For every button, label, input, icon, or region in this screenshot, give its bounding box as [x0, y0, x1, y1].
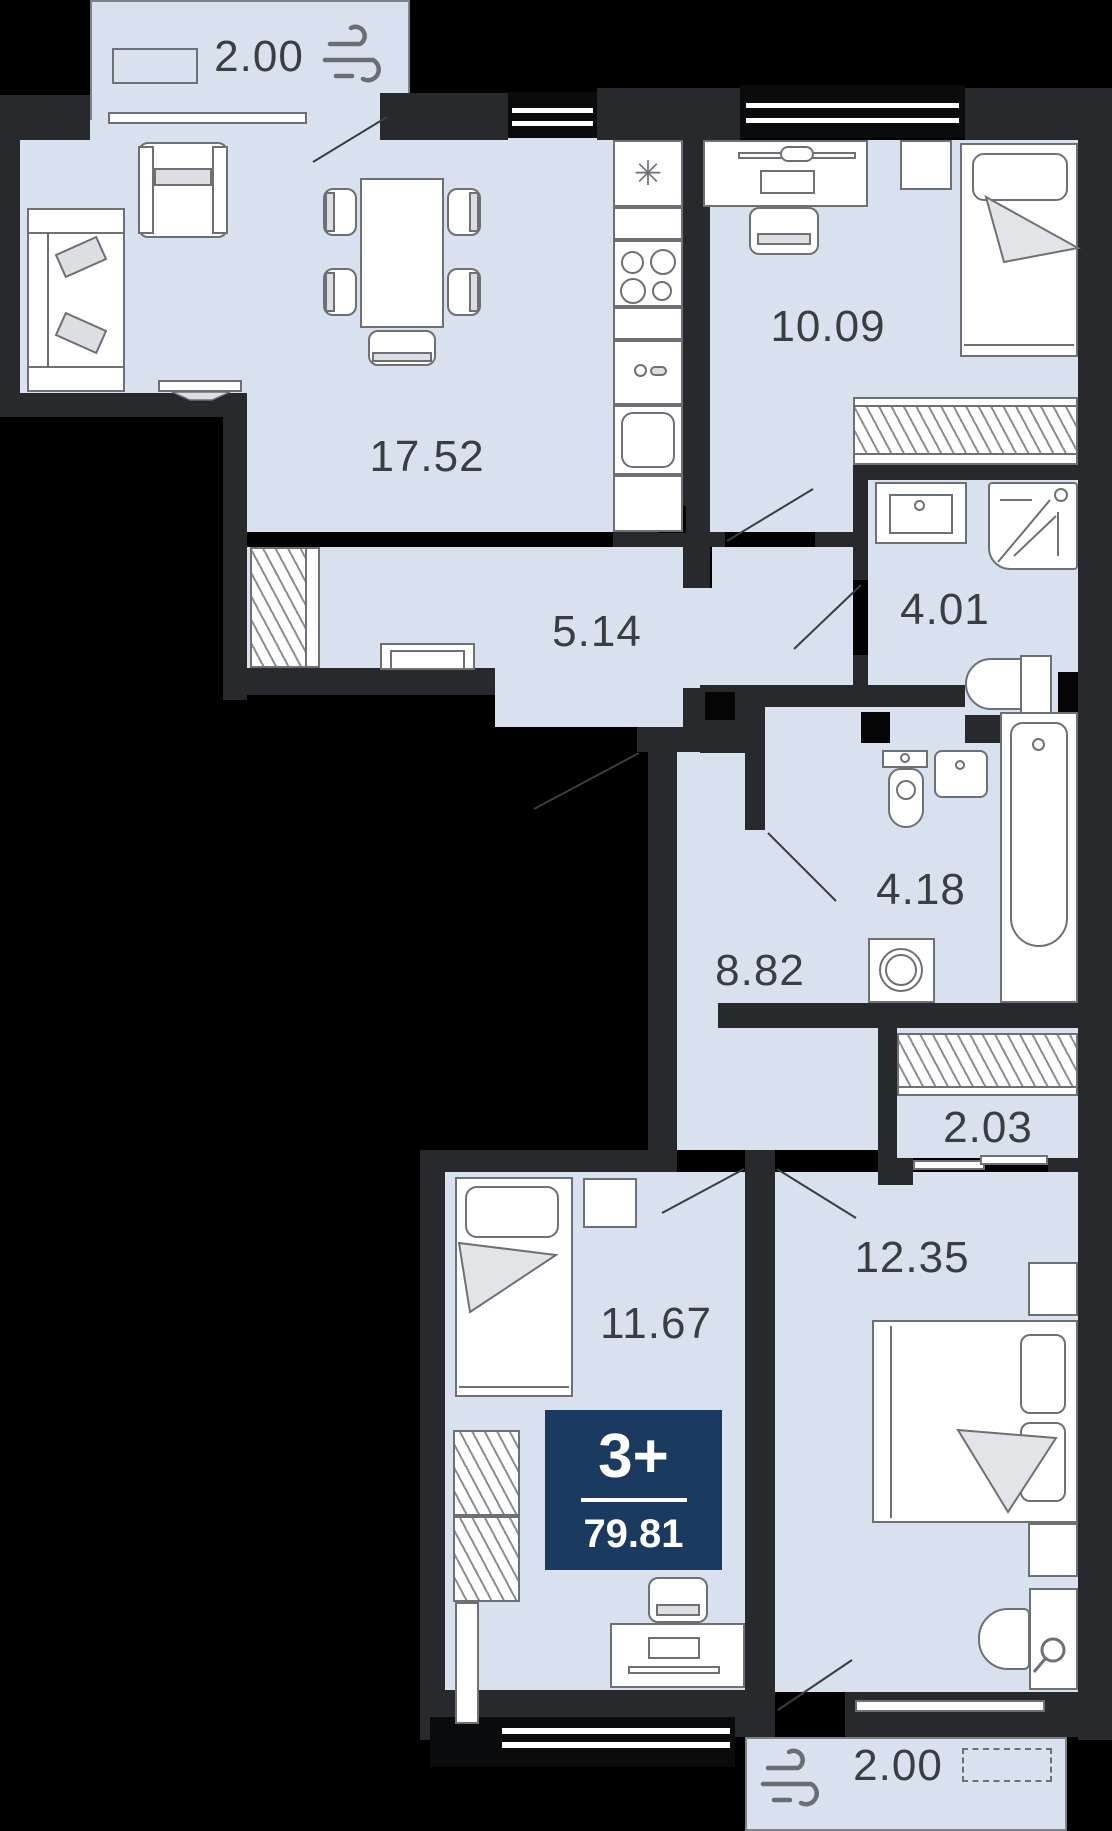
room-area-label: 12.35 — [854, 1233, 969, 1283]
utility-shaft — [861, 712, 890, 743]
toilet-bowl-inner — [896, 780, 916, 800]
desk-chair — [749, 207, 819, 255]
sink-basin-inner — [621, 412, 675, 468]
balcony-window — [855, 1700, 1045, 1712]
wall — [845, 1692, 1078, 1737]
wall — [648, 752, 677, 1150]
wardrobe — [453, 1430, 520, 1516]
wall — [965, 88, 1078, 140]
room-area-label: 4.01 — [900, 585, 990, 635]
dining-chair-cushion — [372, 352, 432, 362]
window-glass — [512, 108, 593, 113]
keyboard — [628, 1666, 720, 1674]
sink-faucet — [634, 364, 647, 377]
desk — [1029, 1588, 1078, 1690]
nightstand — [583, 1178, 637, 1228]
room-area-label: 2.00 — [214, 32, 304, 82]
bathtub-drain — [1032, 738, 1045, 751]
kitchen-counter — [613, 207, 683, 240]
bed-pillow — [465, 1186, 559, 1238]
badge-rooms-count: 3+ — [598, 1426, 669, 1488]
wall — [597, 88, 740, 140]
nightstand — [1028, 1523, 1078, 1577]
wall — [0, 140, 20, 407]
washing-machine-door-inner — [885, 954, 917, 986]
floor-plan: ✳ — [0, 0, 1112, 1831]
wall — [718, 1003, 1078, 1028]
room-area-label: 8.82 — [715, 946, 805, 996]
wall — [745, 685, 765, 830]
kitchen-counter — [613, 475, 683, 532]
small-washbasin — [934, 750, 988, 798]
wall — [223, 668, 495, 695]
closet-wardrobe — [897, 1033, 1078, 1088]
desk-chair-back — [757, 233, 811, 245]
room-area-label: 2.00 — [853, 1741, 943, 1791]
desk-chair — [978, 1608, 1030, 1670]
balcony-box — [112, 48, 198, 84]
wall — [878, 1158, 913, 1185]
wall-window-frame — [508, 92, 597, 138]
utility-shaft — [705, 692, 735, 720]
wardrobe — [453, 1516, 520, 1602]
corridor-floor — [712, 547, 853, 685]
dining-table — [360, 178, 444, 328]
desk-chair — [648, 1577, 708, 1623]
toilet-tank — [1020, 655, 1052, 715]
wall — [420, 1150, 677, 1172]
hallway-wardrobe-door — [305, 547, 320, 668]
washbasin-drain — [955, 760, 965, 770]
window-glass — [502, 1742, 730, 1748]
stove-burner — [650, 249, 676, 275]
bed-footline — [459, 1386, 569, 1388]
wall — [0, 95, 90, 140]
bathtub-inner — [1010, 722, 1068, 947]
bed-pillow — [1020, 1334, 1066, 1414]
armchair-arm — [212, 146, 228, 234]
stove-burner — [652, 281, 672, 301]
sink-faucet-lever — [650, 366, 667, 376]
bed-footline — [964, 344, 1074, 346]
armchair-arm — [138, 146, 154, 234]
badge-total-area: 79.81 — [583, 1514, 683, 1554]
wall-window-frame — [740, 85, 965, 138]
toilet-bowl — [965, 658, 1023, 710]
shower-head — [1054, 488, 1068, 502]
stove-burner — [620, 278, 646, 304]
room-area-label: 5.14 — [552, 607, 642, 657]
dining-chair-cushion — [325, 192, 335, 232]
kitchen-fridge: ✳ — [613, 140, 683, 207]
desk-chair-back — [656, 1604, 700, 1616]
room-area-label: 10.09 — [770, 302, 885, 352]
toilet-flush-button — [900, 753, 910, 763]
room-area-label: 4.18 — [876, 865, 966, 915]
bedroom-top-floor — [710, 397, 853, 532]
dining-chair-cushion — [469, 192, 479, 232]
tv-console — [158, 380, 242, 392]
dining-chair-cushion — [325, 272, 335, 312]
nightstand — [1028, 1262, 1078, 1316]
badge-divider — [581, 1498, 687, 1502]
desk-item — [760, 170, 815, 194]
window-glass — [746, 118, 959, 123]
balcony-window — [108, 112, 307, 124]
wall — [853, 465, 1078, 480]
wall — [223, 393, 247, 700]
wall — [815, 532, 853, 547]
window-glass — [512, 121, 593, 126]
apartment-badge: 3+ 79.81 — [545, 1410, 722, 1570]
closet-sliding-door — [980, 1155, 1048, 1165]
hallway-wardrobe — [250, 547, 307, 668]
wall — [613, 532, 725, 547]
wall — [0, 393, 223, 417]
room-area-label: 11.67 — [600, 1299, 712, 1349]
wall — [420, 1150, 445, 1740]
wall — [853, 465, 868, 580]
hallway-doorway — [683, 588, 712, 688]
hallway-floor — [495, 668, 697, 727]
monitor-base — [780, 146, 814, 162]
kitchen-counter — [613, 307, 683, 340]
built-in-wardrobe-bottom — [853, 453, 1078, 465]
sofa-armrest — [27, 208, 125, 234]
wall — [380, 93, 508, 140]
shoe-bench-inner — [390, 650, 465, 670]
corridor-floor — [677, 1028, 878, 1150]
closet-wardrobe-front — [897, 1086, 1078, 1096]
bed-pillow — [972, 153, 1068, 201]
desk-item — [648, 1637, 700, 1659]
window-glass — [502, 1728, 730, 1734]
wall-right-outer — [1078, 88, 1112, 1740]
armchair-cushion — [154, 168, 212, 186]
dining-chair-cushion — [469, 272, 479, 312]
sofa-back — [27, 232, 49, 368]
balcony-box-dashed — [962, 1748, 1052, 1782]
room-area-label: 2.03 — [943, 1103, 1033, 1153]
closet-sliding-door — [913, 1160, 985, 1170]
wall — [745, 1150, 775, 1717]
bed-pillow — [1020, 1422, 1066, 1502]
fridge-icon: ✳ — [634, 154, 663, 194]
shelf — [455, 1602, 479, 1724]
window-glass — [746, 103, 959, 108]
wall — [765, 685, 965, 707]
built-in-wardrobe — [853, 405, 1078, 455]
washbasin-drain — [914, 500, 925, 511]
wall — [1048, 1158, 1078, 1172]
door-swing-entrance — [534, 753, 639, 809]
nightstand — [900, 140, 952, 190]
stove-burner — [621, 251, 644, 274]
room-area-label: 17.52 — [369, 432, 484, 482]
kitchen-sink-top — [613, 340, 683, 405]
sofa-armrest — [27, 366, 125, 392]
bed-footline — [890, 1326, 892, 1518]
